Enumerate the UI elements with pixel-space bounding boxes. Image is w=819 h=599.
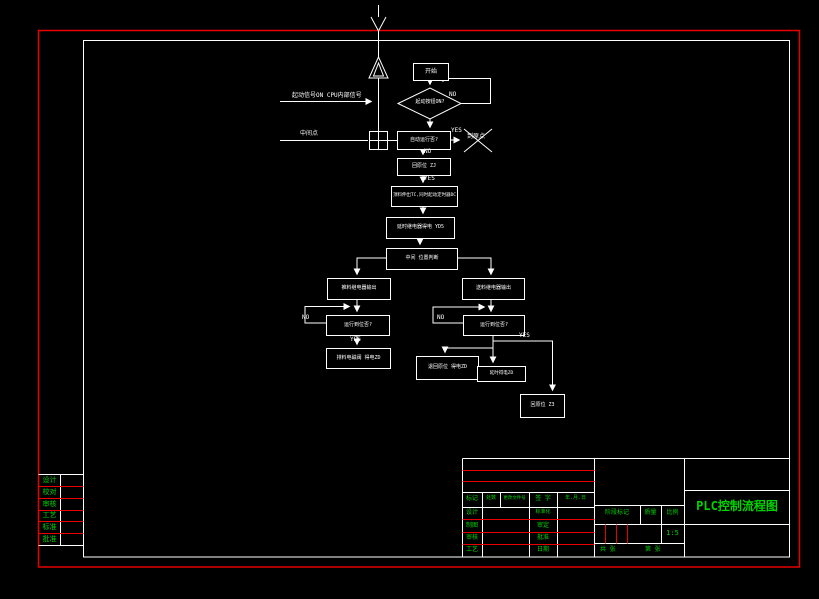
sig-row-proof: 校对 xyxy=(39,489,60,496)
flow-box-z3: 回原位 Z3 xyxy=(520,394,565,418)
no-label-right-check: NO xyxy=(437,315,444,321)
signal-mid-label: 中间点 xyxy=(300,131,318,137)
yes-label-auto: YES xyxy=(451,128,462,134)
to-origin-crossed-label: 到原点 xyxy=(467,134,485,140)
flow-box-delay-zd: 延时得电ZD xyxy=(477,366,526,382)
sig-row-design: 设计 xyxy=(39,477,60,484)
flow-box-left-final-zd: 排料电磁阀 得电ZD xyxy=(326,348,391,369)
tb-stage-mark: 阶段标记 xyxy=(594,510,640,516)
yes-label-left-check: YES xyxy=(350,337,361,343)
flow-box-return-zd: 退回原位 得电ZD xyxy=(416,356,479,380)
flow-box-mid-judge: 中间 位置判断 xyxy=(386,248,458,270)
tb-weight: 质量 xyxy=(640,510,661,516)
sig-row-process: 工艺 xyxy=(39,512,60,519)
tb-scale-label: 比例 xyxy=(661,510,684,516)
th-count: 处数 xyxy=(482,496,500,501)
flow-box-left-check: 运行到位否? xyxy=(326,315,390,336)
cad-canvas: 开始 起动按钮ON? 自动运行否? 回原位 ZJ 顶料伸出TC,同时起动定时器D… xyxy=(0,0,819,599)
sig-row-approve: 批准 xyxy=(39,536,60,543)
th-date: 年.月.日 xyxy=(557,496,594,501)
tb-row-draw: 制图 xyxy=(462,523,482,529)
th-signature: 签 字 xyxy=(529,496,557,502)
flow-box-right-check: 运行到位否? xyxy=(463,315,525,336)
tb-row-process: 工艺 xyxy=(462,547,482,553)
tb-row-check: 审核 xyxy=(462,535,482,541)
no-label-auto: NO xyxy=(424,149,431,155)
tb-sheet-total: 共 张 xyxy=(600,547,616,553)
tb-sheet-number: 第 张 xyxy=(645,547,661,553)
inner-white-frame xyxy=(84,41,790,558)
flow-box-tc-timer: 顶料伸出TC,同时起动定时器DC xyxy=(391,186,458,207)
flow-decision-start-label: 起动按钮ON? xyxy=(399,100,461,105)
signal-cpu-label: 起动信号ON CPU内部信号 xyxy=(292,93,362,99)
title-block-white-lines xyxy=(39,459,790,558)
flow-box-return-origin-zj: 回原位 ZJ xyxy=(397,158,451,176)
sig-row-check: 审核 xyxy=(39,501,60,508)
th-change-file: 更改文件号 xyxy=(500,497,529,502)
th-mark: 标记 xyxy=(462,496,482,502)
tb-row-date: 日期 xyxy=(529,547,557,553)
outer-red-frame xyxy=(39,31,800,568)
flow-box-left-output: 推料继电器输出 xyxy=(327,278,391,300)
flow-box-yd5: 延时继电器得电 YD5 xyxy=(386,217,455,239)
tb-row-approve: 批准 xyxy=(529,535,557,541)
tb-scale-value: 1:5 xyxy=(661,530,684,537)
tb-row-examine: 审定 xyxy=(529,523,557,529)
no-label-decision: NO xyxy=(449,92,456,98)
drawing-title: PLC控制流程图 xyxy=(685,500,789,512)
flow-box-right-output: 送料继电器输出 xyxy=(462,278,525,300)
flow-box-start: 开始 xyxy=(413,63,449,81)
yes-label-right-check: YES xyxy=(519,333,530,339)
no-label-left-check: NO xyxy=(302,315,309,321)
sig-row-standard: 标准 xyxy=(39,524,60,531)
tb-row-design: 设计 xyxy=(462,510,482,516)
tb-row-standardize: 标准化 xyxy=(529,510,557,515)
yes-label-origin: YES xyxy=(424,176,435,182)
